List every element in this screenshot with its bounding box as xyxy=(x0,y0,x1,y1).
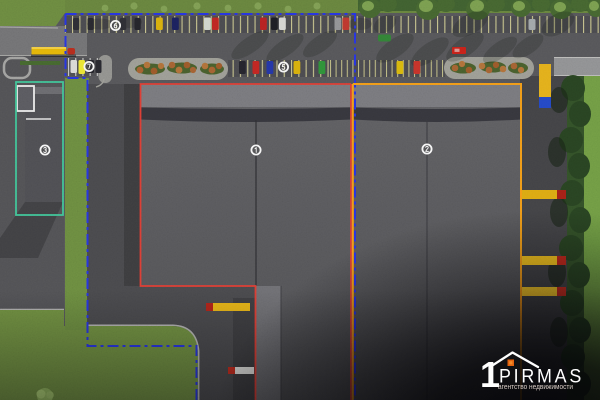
svg-text:агентство недвижимости: агентство недвижимости xyxy=(498,384,573,391)
